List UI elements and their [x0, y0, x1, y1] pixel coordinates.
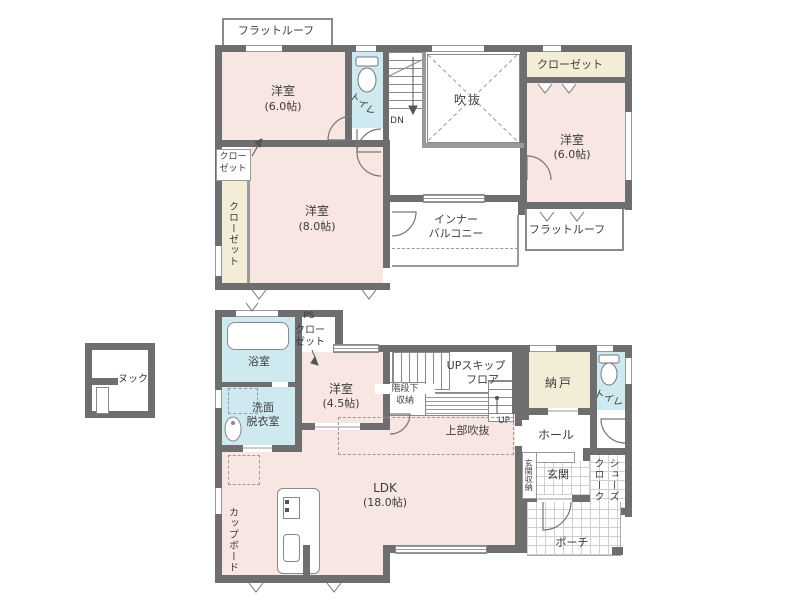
closet-west-label: クローゼット: [226, 186, 238, 281]
bedroom-45-size: (4.5帖): [301, 398, 381, 411]
wall: [222, 382, 272, 387]
upper-void-label: 上部吹抜: [420, 425, 515, 438]
under-stair-line1: 階段下: [375, 384, 435, 394]
window: [423, 194, 485, 203]
ps-closet-line2: ゼット: [288, 337, 332, 349]
window: [432, 45, 484, 52]
storage-room-label: 納戸: [529, 377, 589, 391]
shoe-closet-line2: クローク: [590, 458, 605, 516]
kitchen-wall-stub: [303, 545, 310, 575]
wall: [422, 52, 426, 148]
bedroom-45-label: 洋室: [301, 383, 381, 397]
bedroom-nw-label: 洋室: [233, 85, 333, 99]
porch-label: ポーチ: [542, 537, 602, 550]
bedroom-ne-size: (6.0帖): [522, 149, 622, 162]
wall: [422, 143, 524, 148]
wall: [215, 283, 390, 290]
skip-floor-line2: フロア: [460, 374, 505, 387]
window: [236, 310, 278, 317]
window: [215, 246, 222, 276]
stairs-dn-label: DN: [384, 116, 410, 126]
hall-label: ホール: [521, 429, 591, 443]
wall: [215, 140, 390, 147]
wall: [523, 408, 548, 415]
wall: [515, 412, 522, 426]
window: [215, 390, 222, 408]
bedroom-sw-label: 洋室: [267, 205, 367, 219]
skip-floor-line1: UPスキップ: [443, 360, 509, 373]
wall: [520, 495, 527, 553]
washroom-line2: 脱衣室: [223, 416, 303, 429]
window: [530, 345, 556, 352]
wall: [578, 408, 590, 415]
stairs-2f: [389, 52, 422, 116]
wall: [222, 445, 243, 452]
stove-burner: [285, 508, 289, 512]
wall: [520, 202, 632, 209]
stove-burner: [285, 500, 289, 504]
balcony-dashed-line: [392, 248, 518, 249]
window: [597, 345, 613, 352]
void-label: 吹抜: [428, 94, 508, 108]
flat-roof-top-label: フラットルーフ: [224, 25, 328, 38]
wall: [590, 408, 597, 448]
window: [543, 45, 561, 52]
window: [246, 45, 282, 52]
balcony-edge: [392, 265, 518, 267]
under-stair-line2: 収納: [375, 396, 435, 406]
ldk-label: LDK: [345, 482, 425, 496]
wall: [288, 382, 295, 387]
washroom-line1: 洗面: [223, 402, 303, 415]
cupboard-label: カップボード: [226, 503, 238, 577]
nook-label: ヌック: [108, 374, 158, 386]
ps-closet-line1: クロー: [288, 325, 332, 337]
bathtub-icon: [227, 322, 289, 350]
bath-label: 浴室: [224, 356, 294, 369]
door-toilet-1f: [601, 419, 625, 443]
shoe-closet-line1: シューズ: [605, 458, 620, 516]
bedroom-sw-size: (8.0帖): [267, 221, 367, 234]
bedroom-nw-size: (6.0帖): [233, 101, 333, 114]
entrance-storage-label: 玄関収納: [524, 455, 533, 495]
window: [215, 488, 222, 514]
entrance-step: [535, 452, 575, 463]
pipe-space-label: PS: [294, 311, 324, 321]
wall: [272, 445, 295, 452]
wall: [583, 448, 632, 455]
wall: [85, 343, 155, 350]
flat-roof-se-label: フラットルーフ: [517, 224, 617, 237]
wall: [85, 343, 92, 418]
closet-small-line2: ゼット: [218, 164, 248, 174]
shoe-closet-label: シューズ クローク: [590, 458, 620, 516]
inner-balcony-line2: バルコニー: [406, 228, 506, 241]
floor-plan: フラットルーフ 洋室 (6.0帖) トイレ DN 吹抜 クローゼット 洋室 (6…: [0, 0, 800, 600]
entrance-label: 玄関: [533, 469, 583, 482]
window: [333, 344, 379, 353]
wall: [247, 180, 250, 283]
porch-pillar: [612, 547, 623, 555]
bedroom-ne-label: 洋室: [522, 134, 622, 148]
wall: [512, 352, 520, 414]
wall: [215, 310, 222, 583]
fridge-space: [228, 455, 260, 485]
wall: [383, 52, 389, 140]
window: [395, 545, 487, 554]
nook-bench: [96, 387, 109, 414]
kitchen-sink: [283, 534, 300, 562]
wall: [383, 140, 390, 268]
balcony-edge: [517, 215, 519, 266]
inner-balcony-line1: インナー: [406, 214, 506, 227]
wall: [527, 77, 625, 83]
wall: [518, 195, 525, 215]
wall: [215, 575, 390, 583]
window: [356, 45, 376, 52]
window: [625, 358, 632, 384]
closet-ne-label: クローゼット: [520, 59, 620, 72]
window: [625, 112, 632, 180]
closet-small-line1: クロー: [218, 152, 248, 162]
closet-small-label-box: クロー ゼット: [216, 149, 251, 181]
ldk-size: (18.0帖): [345, 497, 425, 510]
